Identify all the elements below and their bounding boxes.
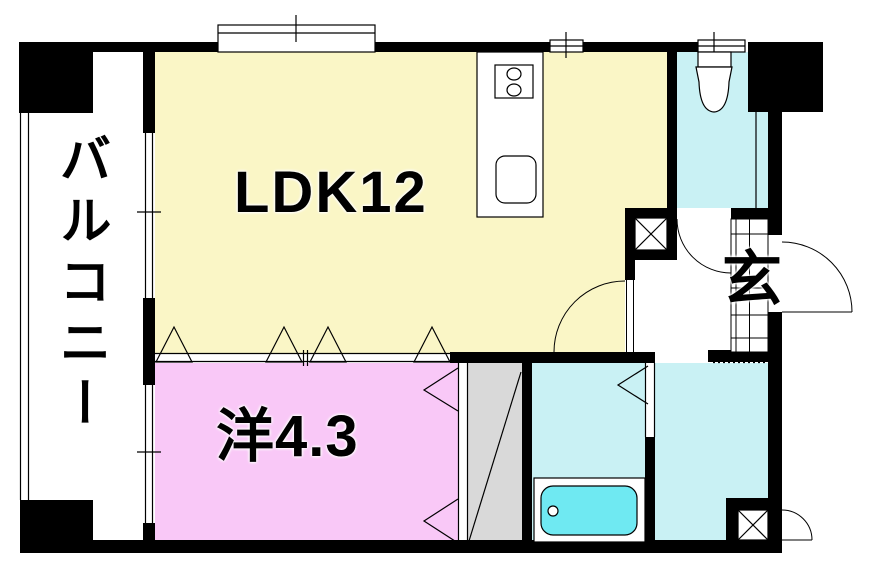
wall-bathroom-right	[645, 437, 655, 543]
meter-box-frame-right	[768, 510, 782, 542]
wall-toilet-bottom	[731, 208, 768, 219]
wall-balcony-middle	[143, 298, 155, 385]
wall-top-1	[93, 42, 218, 52]
wall-balcony-upper	[143, 42, 155, 133]
wall-bottom	[20, 540, 782, 553]
meter-box-frame-top	[726, 498, 782, 510]
entrance-door-swing-arc	[782, 242, 852, 312]
kitchen-sink	[496, 156, 536, 203]
floor-plan: バルコニー LDK12 洋4.3 玄	[0, 0, 872, 572]
wall-bathroom-left	[522, 362, 532, 543]
wall-corner-bottom-left	[20, 500, 93, 542]
wall-top-3	[583, 42, 698, 52]
ldk-label: LDK12	[234, 164, 428, 222]
kitchen	[477, 52, 543, 217]
western-room-label: 洋4.3	[216, 408, 359, 466]
toilet-tank	[698, 52, 731, 67]
wall-corner-top-left	[19, 42, 93, 113]
wall-below-pipe-shaft	[625, 259, 635, 281]
bathtub-drain	[548, 506, 558, 516]
balcony-western-window	[143, 385, 155, 523]
stove	[495, 65, 533, 98]
meter-box-door-swing-arc	[782, 510, 812, 540]
bath	[534, 478, 645, 542]
meter-box-frame-left	[726, 510, 738, 542]
wall-mid-horizontal-1	[450, 352, 655, 363]
balcony-railing	[21, 113, 29, 500]
wall-top-2	[375, 42, 550, 52]
entrance-label: 玄	[722, 250, 782, 310]
wall-toilet-left	[667, 52, 677, 208]
wall-right-upper	[768, 112, 782, 235]
balcony-ldk-window	[143, 133, 155, 298]
balcony-label: バルコニー	[54, 132, 106, 472]
wall-right-lower	[768, 312, 782, 498]
wall-corner-top-right	[748, 42, 823, 112]
